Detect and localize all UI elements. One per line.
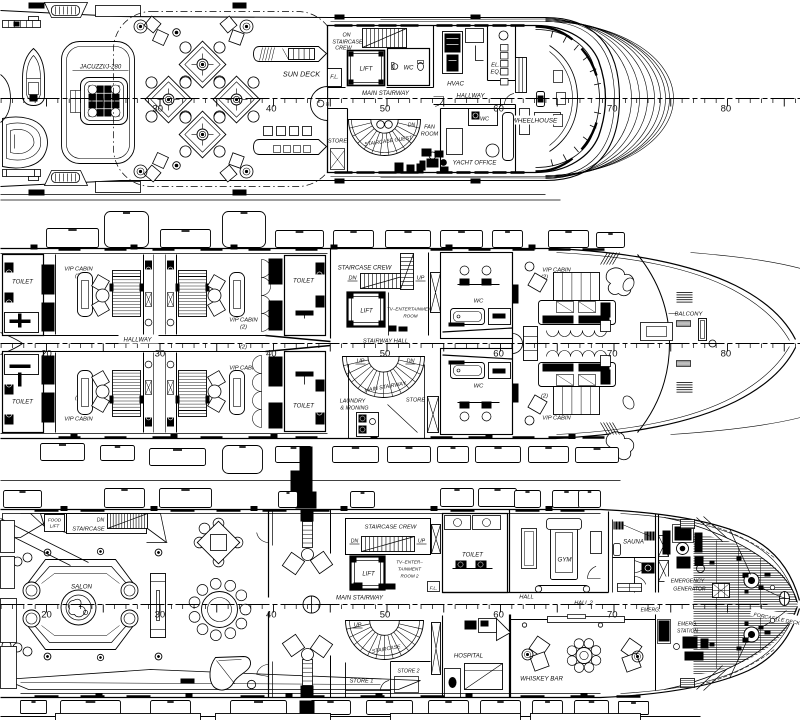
svg-text:WC: WC	[480, 117, 489, 123]
svg-text:WC: WC	[474, 299, 484, 305]
svg-text:ON: ON	[342, 33, 350, 39]
svg-text:DN: DN	[348, 276, 357, 282]
svg-text:F.L.: F.L.	[330, 75, 339, 81]
svg-text:FOOD: FOOD	[48, 518, 62, 523]
svg-text:50: 50	[380, 349, 391, 360]
svg-text:UP: UP	[418, 539, 426, 545]
svg-text:STAIRCASE CREW: STAIRCASE CREW	[365, 525, 417, 531]
svg-text:UP: UP	[354, 623, 362, 629]
svg-text:60: 60	[493, 104, 504, 115]
svg-text:& IRONING: & IRONING	[340, 406, 368, 412]
svg-text:TAINMENT: TAINMENT	[398, 567, 422, 572]
svg-text:EMERG.: EMERG.	[641, 608, 661, 614]
svg-text:VIP CABIN: VIP CABIN	[64, 267, 93, 273]
svg-text:VIP CABIN: VIP CABIN	[64, 417, 93, 423]
svg-text:TV–ENTERTAINMENT: TV–ENTERTAINMENT	[387, 307, 435, 312]
svg-text:8: 8	[326, 102, 329, 108]
svg-text:80: 80	[721, 104, 732, 115]
svg-text:JACUZZI/J-280: JACUZZI/J-280	[79, 65, 122, 71]
svg-text:ROOM: ROOM	[421, 132, 439, 138]
svg-text:40: 40	[266, 104, 277, 115]
svg-text:VIP CABIN: VIP CABIN	[542, 416, 571, 422]
svg-text:HALL 2: HALL 2	[574, 601, 593, 607]
svg-text:STORE: STORE	[328, 139, 347, 145]
svg-text:UP: UP	[417, 276, 425, 282]
svg-text:BALCONY: BALCONY	[675, 312, 704, 318]
svg-text:STORE: STORE	[406, 398, 425, 404]
svg-text:HOSPITAL: HOSPITAL	[454, 654, 483, 660]
svg-text:TV–ENTER–: TV–ENTER–	[396, 560, 423, 565]
svg-text:STATION: STATION	[677, 629, 698, 635]
svg-text:DN: DN	[406, 359, 415, 365]
svg-text:STAIRCASE CREW: STAIRCASE CREW	[338, 266, 393, 272]
svg-text:50: 50	[380, 610, 391, 621]
svg-text:70: 70	[607, 349, 618, 360]
svg-text:70: 70	[607, 104, 618, 115]
svg-text:GYM: GYM	[557, 557, 572, 564]
svg-text:LIFT: LIFT	[362, 572, 376, 578]
svg-text:30: 30	[155, 610, 166, 621]
svg-text:DN: DN	[97, 518, 105, 524]
svg-text:EMERG.: EMERG.	[678, 622, 698, 628]
svg-text:UP: UP	[357, 359, 365, 365]
svg-text:HVAC: HVAC	[447, 81, 464, 88]
svg-text:30: 30	[152, 104, 163, 115]
svg-text:TOILET: TOILET	[293, 404, 315, 410]
svg-text:WHISKEY BAR: WHISKEY BAR	[520, 676, 563, 683]
svg-text:LIFT: LIFT	[50, 524, 61, 529]
svg-text:EMERGENCY: EMERGENCY	[671, 579, 705, 585]
svg-text:MAIN STAIRWAY: MAIN STAIRWAY	[336, 596, 384, 602]
svg-text:20: 20	[41, 349, 52, 360]
svg-text:MAIN STAIRWAY: MAIN STAIRWAY	[362, 91, 410, 97]
svg-text:SAUNA: SAUNA	[623, 540, 644, 546]
svg-text:(2): (2)	[240, 325, 247, 331]
svg-text:DN: DN	[351, 539, 359, 545]
svg-text:30: 30	[155, 349, 166, 360]
svg-text:LIFT: LIFT	[360, 309, 374, 315]
svg-text:LIFT: LIFT	[360, 66, 374, 73]
svg-text:TOILET: TOILET	[293, 279, 315, 285]
svg-text:60: 60	[493, 610, 504, 621]
svg-text:SUN DECK: SUN DECK	[283, 70, 321, 79]
svg-text:ROOM: ROOM	[403, 314, 417, 319]
svg-text:80: 80	[721, 349, 732, 360]
svg-text:EL.: EL.	[491, 63, 500, 69]
svg-text:40: 40	[266, 610, 277, 621]
svg-text:F.L.: F.L.	[430, 586, 438, 592]
svg-text:WC: WC	[474, 384, 484, 390]
svg-text:VIP CABIN: VIP CABIN	[229, 318, 258, 324]
svg-text:STORE 2: STORE 2	[397, 669, 419, 675]
svg-text:40: 40	[266, 349, 277, 360]
svg-text:TOILET: TOILET	[462, 553, 484, 559]
svg-text:(2): (2)	[240, 345, 247, 351]
svg-text:FAN: FAN	[424, 125, 436, 131]
svg-text:DN: DN	[408, 123, 416, 129]
svg-text:20: 20	[41, 610, 52, 621]
svg-text:70: 70	[607, 610, 618, 621]
svg-text:STORE 1: STORE 1	[350, 679, 374, 685]
svg-text:TOILET: TOILET	[12, 400, 34, 406]
svg-text:HALL: HALL	[519, 595, 534, 601]
svg-text:WHEELHOUSE: WHEELHOUSE	[512, 118, 558, 125]
svg-text:HALLWAY: HALLWAY	[124, 338, 153, 344]
svg-text:WC: WC	[404, 66, 415, 72]
svg-text:STAIRCASE: STAIRCASE	[72, 527, 105, 533]
svg-text:EQ.: EQ.	[491, 70, 501, 76]
svg-text:ROOM 2: ROOM 2	[400, 574, 419, 579]
svg-text:TOILET: TOILET	[12, 280, 34, 286]
svg-text:LAUNDRY: LAUNDRY	[340, 399, 366, 405]
svg-text:YACHT OFFICE: YACHT OFFICE	[453, 161, 498, 167]
svg-text:50: 50	[380, 104, 391, 115]
svg-text:SALON: SALON	[71, 584, 93, 591]
svg-text:60: 60	[493, 349, 504, 360]
